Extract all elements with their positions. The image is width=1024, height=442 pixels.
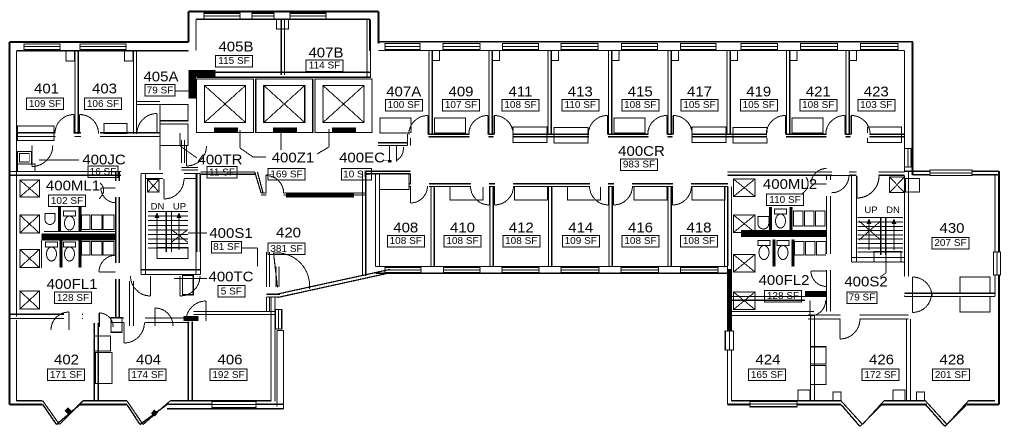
svg-text:174 SF: 174 SF (131, 370, 163, 381)
svg-text:81 SF: 81 SF (213, 242, 240, 253)
svg-text:105 SF: 105 SF (683, 100, 715, 111)
svg-text:414: 414 (568, 220, 593, 237)
svg-text:108 SF: 108 SF (446, 236, 478, 247)
svg-text:400FL1: 400FL1 (47, 276, 98, 293)
svg-text:428: 428 (939, 352, 964, 369)
svg-text:420: 420 (276, 225, 301, 242)
svg-text:430: 430 (939, 220, 964, 237)
svg-text:108 SF: 108 SF (802, 100, 834, 111)
svg-text:128 SF: 128 SF (57, 293, 89, 304)
svg-text:400ML2: 400ML2 (763, 176, 817, 193)
svg-text:114 SF: 114 SF (309, 61, 341, 72)
svg-text:406: 406 (217, 352, 242, 369)
svg-text:409: 409 (448, 84, 473, 101)
svg-text:108 SF: 108 SF (624, 100, 656, 111)
svg-text:423: 423 (864, 84, 889, 101)
svg-text:410: 410 (450, 220, 475, 237)
svg-text:403: 403 (92, 81, 117, 98)
svg-text:115 SF: 115 SF (218, 56, 250, 67)
svg-text:405A: 405A (143, 69, 178, 86)
svg-text:400CR: 400CR (618, 143, 665, 160)
svg-text:407A: 407A (386, 84, 421, 101)
svg-text:405B: 405B (218, 39, 253, 56)
svg-text:424: 424 (755, 352, 780, 369)
svg-text:108 SF: 108 SF (505, 236, 537, 247)
svg-text:413: 413 (568, 84, 593, 101)
svg-text:407B: 407B (308, 45, 343, 62)
svg-text:408: 408 (393, 220, 418, 237)
svg-text:DN: DN (886, 205, 900, 216)
svg-text:400TC: 400TC (208, 268, 253, 285)
svg-text:100 SF: 100 SF (388, 100, 420, 111)
svg-text:400EC: 400EC (339, 150, 385, 167)
svg-text:109 SF: 109 SF (565, 236, 597, 247)
svg-text:400TR: 400TR (197, 152, 242, 169)
svg-text:415: 415 (628, 84, 653, 101)
svg-text:417: 417 (687, 84, 712, 101)
svg-text:108 SF: 108 SF (390, 236, 422, 247)
svg-text:110 SF: 110 SF (769, 195, 801, 206)
svg-text:169 SF: 169 SF (270, 169, 302, 180)
svg-text:103 SF: 103 SF (860, 100, 892, 111)
svg-text:412: 412 (509, 220, 534, 237)
svg-text:192 SF: 192 SF (212, 370, 244, 381)
svg-text:401: 401 (34, 81, 59, 98)
svg-text:16 SF: 16 SF (90, 167, 117, 178)
svg-text:102 SF: 102 SF (51, 196, 83, 207)
svg-text:418: 418 (686, 220, 711, 237)
svg-text:416: 416 (628, 220, 653, 237)
svg-text:400S1: 400S1 (209, 225, 252, 242)
svg-text:79 SF: 79 SF (147, 86, 174, 97)
svg-text:419: 419 (746, 84, 771, 101)
svg-text:79 SF: 79 SF (849, 293, 876, 304)
svg-text:400ML1: 400ML1 (46, 178, 100, 195)
svg-text:DN: DN (151, 202, 165, 213)
svg-text:11 SF: 11 SF (209, 167, 235, 178)
svg-text:5 SF: 5 SF (221, 286, 242, 297)
svg-text:109 SF: 109 SF (29, 99, 61, 110)
svg-text:404: 404 (136, 352, 161, 369)
svg-text:400Z1: 400Z1 (272, 150, 315, 167)
svg-text:411: 411 (509, 84, 533, 101)
svg-text:171 SF: 171 SF (50, 370, 82, 381)
svg-text:201 SF: 201 SF (935, 370, 967, 381)
svg-text:400FL2: 400FL2 (759, 272, 810, 289)
svg-text:172 SF: 172 SF (864, 370, 896, 381)
svg-text:400S2: 400S2 (844, 274, 887, 291)
svg-text:165 SF: 165 SF (751, 370, 783, 381)
svg-text:UP: UP (173, 202, 186, 213)
svg-text:110 SF: 110 SF (565, 100, 597, 111)
svg-text:402: 402 (54, 352, 79, 369)
svg-text:108 SF: 108 SF (624, 236, 656, 247)
svg-text:10 SF: 10 SF (343, 169, 370, 180)
svg-text:107 SF: 107 SF (445, 100, 477, 111)
svg-text:983 SF: 983 SF (623, 160, 655, 171)
svg-text:426: 426 (869, 352, 894, 369)
svg-text:108 SF: 108 SF (504, 100, 536, 111)
svg-text:108 SF: 108 SF (683, 236, 715, 247)
svg-text:106 SF: 106 SF (87, 99, 119, 110)
svg-text:UP: UP (864, 205, 877, 216)
svg-text:207 SF: 207 SF (934, 238, 966, 249)
svg-text:105 SF: 105 SF (743, 100, 775, 111)
svg-text:421: 421 (806, 84, 831, 101)
